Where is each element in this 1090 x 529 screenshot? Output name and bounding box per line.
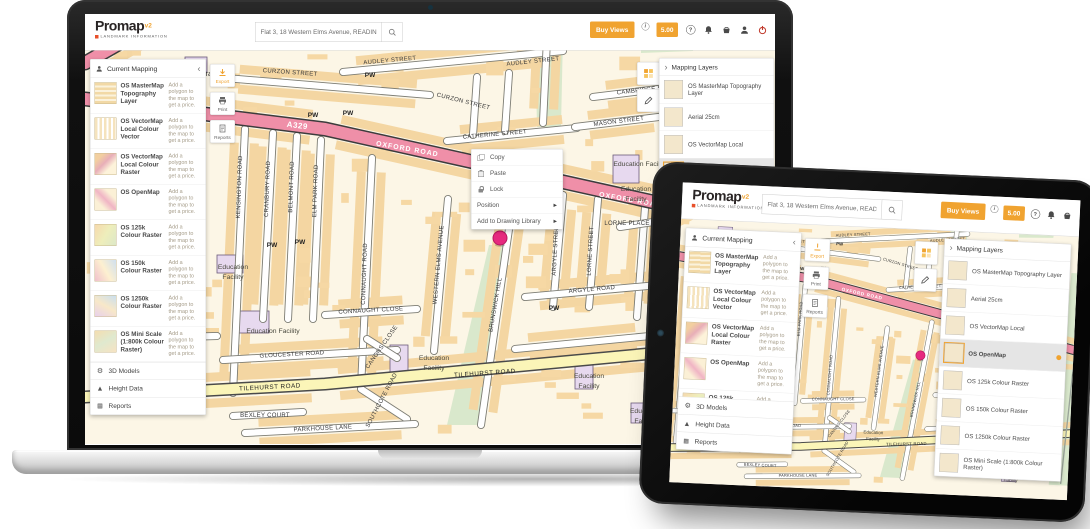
footer-icon xyxy=(683,419,691,427)
tablet-screen: Promapv2 LANDMARK INFORMATION Buy Views … xyxy=(669,182,1080,500)
mapping-product-item[interactable]: OS MasterMap Topography Layer Add a poly… xyxy=(91,78,206,113)
layer-price-note: Add a polygon to the map to get a price. xyxy=(169,153,202,180)
street-label: BEXLEY COURT xyxy=(240,413,290,419)
logo-version: v2 xyxy=(742,192,750,200)
promap-app: Promapv2 LANDMARK INFORMATION Buy Views … xyxy=(669,182,1080,500)
mapping-product-item[interactable]: OS VectorMap Local Colour Raster Add a p… xyxy=(91,149,206,184)
layer-thumbnail xyxy=(945,315,965,335)
map-tools-right xyxy=(637,62,660,112)
layer-option[interactable]: OS MasterMap Topography Layer xyxy=(660,76,774,104)
mapping-product-item[interactable]: OS 125k Colour Raster Add a polygon to t… xyxy=(91,220,206,255)
layer-name: OS 125k Colour Raster xyxy=(967,377,1060,388)
layer-name: OS VectorMap Local Colour Raster xyxy=(711,323,756,348)
menu-label: Position xyxy=(477,202,549,210)
street-label: PW xyxy=(308,112,319,119)
mapping-product-item[interactable]: OS 150k Colour Raster Add a polygon to t… xyxy=(91,255,206,290)
current-mapping-header: Current Mapping xyxy=(91,60,206,79)
help-icon[interactable] xyxy=(1030,208,1041,219)
current-mapping-panel: Current Mapping OS MasterMap Topography … xyxy=(90,59,206,415)
street-label: Education xyxy=(621,186,651,193)
menu-icon xyxy=(477,186,485,194)
layer-thumbnail xyxy=(95,224,117,246)
map-tools-right xyxy=(913,241,938,292)
layer-thumbnail xyxy=(687,286,710,309)
collapse-icon[interactable] xyxy=(198,64,201,73)
logout-icon[interactable] xyxy=(757,24,768,35)
mapping-product-item[interactable]: OS Mini Scale (1:800k Colour Raster) Add… xyxy=(91,326,206,361)
street-label: Facility xyxy=(578,383,600,390)
promap-logo: Promapv2 LANDMARK INFORMATION xyxy=(692,188,765,211)
footer-icon xyxy=(96,385,104,393)
search-icon xyxy=(887,205,896,214)
export-icon xyxy=(218,68,228,78)
tablet-device: Promapv2 LANDMARK INFORMATION Buy Views … xyxy=(638,161,1090,523)
street-label: PW xyxy=(343,110,354,117)
user-icon xyxy=(691,234,699,242)
menu-icon xyxy=(477,154,485,162)
logo-subtext: LANDMARK INFORMATION xyxy=(101,35,168,39)
street-label: PW xyxy=(365,72,376,79)
reports-button[interactable]: Reports xyxy=(802,294,828,318)
footer-label: 3D Models xyxy=(696,402,727,411)
context-menu-item[interactable]: Add to Drawing Library xyxy=(472,214,563,230)
layer-price-note: Add a polygon to the map to get a price. xyxy=(169,188,202,215)
logo-text: Promap xyxy=(95,18,144,34)
layer-price-note: Add a polygon to the map to get a price. xyxy=(169,330,202,357)
search-input[interactable] xyxy=(255,22,382,42)
layer-name: OS OpenMap xyxy=(121,188,165,196)
street-label: TILEHURST ROAD xyxy=(886,441,927,447)
active-layer-dot xyxy=(1056,355,1061,360)
layer-thumbnail xyxy=(664,108,683,127)
street-label: Education Facility xyxy=(246,328,300,335)
layer-thumbnail xyxy=(664,135,683,154)
layer-thumbnail xyxy=(95,295,117,317)
footer-icon xyxy=(96,367,104,375)
layer-price-note: Add a polygon to the map to get a price. xyxy=(169,82,202,109)
buy-views-button[interactable]: Buy Views xyxy=(940,202,985,220)
layer-name: Aerial 25cm xyxy=(688,113,769,120)
layer-price-note: Add a polygon to the map to get a price. xyxy=(757,360,791,388)
street-label: PW xyxy=(267,242,278,249)
search-button[interactable] xyxy=(881,199,903,220)
header-actions: Buy Views 5.00 xyxy=(940,202,1073,224)
street-label: PW xyxy=(549,305,560,312)
expand-icon[interactable] xyxy=(665,63,668,72)
mapping-product-item[interactable]: OS VectorMap Local Colour Raster Add a p… xyxy=(681,317,797,358)
tool-label: Export xyxy=(810,253,824,259)
layer-price-note: Add a polygon to the map to get a price. xyxy=(169,295,202,322)
reports-icon xyxy=(218,124,228,134)
layer-name: OS MasterMap Topography Layer xyxy=(714,252,759,277)
tool-label: Print xyxy=(218,107,228,113)
promap-logo: Promapv2 LANDMARK INFORMATION xyxy=(95,19,168,39)
footer-label: Reports xyxy=(694,437,717,446)
menu-label: Add to Drawing Library xyxy=(477,218,549,226)
layer-thumbnail xyxy=(688,251,711,274)
street-label: Education xyxy=(218,264,248,271)
layer-thumbnail xyxy=(940,425,960,445)
layer-price-note: Add a polygon to the map to get a price. xyxy=(760,290,794,318)
street-label: PW xyxy=(295,239,306,246)
panel-footer-item[interactable]: Reports xyxy=(91,397,206,415)
layer-name: OS VectorMap Local Colour Raster xyxy=(121,153,165,176)
mapping-product-item[interactable]: OS 1250k Colour Raster Add a polygon to … xyxy=(91,291,206,326)
street-label: Education xyxy=(863,429,884,435)
logo-text: Promap xyxy=(692,187,742,205)
bell-icon[interactable] xyxy=(703,24,714,35)
street-label: Facility xyxy=(222,274,244,281)
street-label: Facility xyxy=(625,196,647,203)
layer-thumbnail xyxy=(948,261,968,281)
layer-name: OS OpenMap xyxy=(710,358,754,368)
layer-price-note: Add a polygon to the map to get a price. xyxy=(762,254,796,282)
context-menu-item[interactable]: Paste xyxy=(472,166,563,182)
user-icon[interactable] xyxy=(739,24,750,35)
layer-thumbnail xyxy=(95,259,117,281)
basket-icon[interactable] xyxy=(721,24,732,35)
app-header: Promapv2 LANDMARK INFORMATION Buy Views … xyxy=(85,14,775,51)
mapping-product-item[interactable]: OS OpenMap Add a polygon to the map to g… xyxy=(679,353,795,394)
credit-badge[interactable]: 5.00 xyxy=(1003,205,1025,220)
help-icon[interactable] xyxy=(685,24,696,35)
header-actions: Buy Views 5.00 xyxy=(590,22,768,39)
draw-button[interactable] xyxy=(913,268,937,292)
address-search xyxy=(255,22,403,42)
layer-price-note: Add a polygon to the map to get a price. xyxy=(169,259,202,286)
layers-button[interactable] xyxy=(914,241,938,265)
webcam-icon xyxy=(428,5,433,10)
submenu-arrow-icon xyxy=(554,203,557,209)
panel-footer-item[interactable]: Height Data xyxy=(91,379,206,397)
map-context-menu: Copy Paste Lock xyxy=(471,149,563,230)
print-icon xyxy=(811,270,821,280)
panel-title: Current Mapping xyxy=(702,234,789,245)
search-button[interactable] xyxy=(382,22,403,42)
footer-label: Reports xyxy=(109,402,132,410)
street-label: CONNAUGHT CLOSE xyxy=(812,396,855,401)
draw-button[interactable] xyxy=(637,89,660,112)
layer-thumbnail xyxy=(664,80,683,99)
mapping-product-item[interactable]: OS VectorMap Local Colour Vector Add a p… xyxy=(682,282,798,323)
layer-price-note: Add a polygon to the map to get a price. xyxy=(169,117,202,144)
credit-badge[interactable]: 5.00 xyxy=(656,23,678,38)
menu-label: Copy xyxy=(490,154,557,162)
layer-thumbnail xyxy=(946,288,966,308)
layers-grid-icon xyxy=(643,68,654,79)
search-icon xyxy=(388,28,397,37)
street-label: Facility xyxy=(423,365,445,372)
layer-name: OS 1250k Colour Raster xyxy=(964,432,1057,443)
tool-label: Print xyxy=(811,281,821,287)
basket-icon[interactable] xyxy=(1061,210,1072,221)
layer-name: OS Mini Scale (1:800k Colour Raster) xyxy=(963,456,1057,475)
mapping-product-item[interactable]: OS MasterMap Topography Layer Add a poly… xyxy=(684,247,800,288)
layer-name: OS VectorMap Local Colour Vector xyxy=(121,117,165,140)
footer-label: 3D Models xyxy=(109,367,140,375)
user-icon xyxy=(96,65,104,73)
layer-name: OS 1250k Colour Raster xyxy=(121,295,165,311)
layer-thumbnail xyxy=(943,370,963,390)
reports-icon xyxy=(810,298,820,308)
address-search xyxy=(762,194,903,220)
print-button[interactable]: Print xyxy=(803,266,829,290)
current-mapping-panel: Current Mapping OS MasterMap Topography … xyxy=(676,228,802,455)
footer-icon xyxy=(682,437,690,445)
layer-thumbnail xyxy=(685,322,708,345)
submenu-arrow-icon xyxy=(554,219,557,225)
street-label: Education xyxy=(574,373,604,380)
context-menu-item[interactable]: Lock xyxy=(472,182,563,198)
search-input[interactable] xyxy=(762,194,882,219)
tool-label: Reports xyxy=(806,309,823,315)
layer-name: OS VectorMap Local xyxy=(969,322,1062,333)
camera-icon xyxy=(657,329,664,336)
menu-label: Paste xyxy=(490,170,557,178)
layer-name: OS 150k Colour Raster xyxy=(966,405,1059,416)
layer-thumbnail xyxy=(95,330,117,352)
layer-thumbnail xyxy=(939,453,959,473)
menu-label: Lock xyxy=(490,186,557,194)
layer-name: OS VectorMap Local xyxy=(688,141,769,148)
panel-title: Mapping Layers xyxy=(956,244,1003,254)
layer-name: OS MasterMap Topography Layer xyxy=(972,267,1065,278)
menu-icon xyxy=(477,170,485,178)
pencil-icon xyxy=(919,274,930,285)
info-icon[interactable] xyxy=(990,205,998,213)
context-menu-item[interactable]: Copy xyxy=(472,150,563,166)
layer-thumbnail xyxy=(95,188,117,210)
layer-thumbnail xyxy=(683,357,706,380)
layers-grid-icon xyxy=(921,247,932,258)
street-label: PW xyxy=(836,241,844,246)
logo-mark-icon xyxy=(692,204,696,208)
layer-option[interactable]: Aerial 25cm xyxy=(660,104,774,132)
reports-button[interactable]: Reports xyxy=(210,120,235,143)
info-icon[interactable] xyxy=(641,22,649,30)
layer-thumbnail xyxy=(95,82,117,104)
buy-views-button[interactable]: Buy Views xyxy=(590,22,634,39)
tool-label: Export xyxy=(216,79,230,85)
panel-title: Current Mapping xyxy=(107,65,194,73)
export-icon xyxy=(812,242,822,252)
layer-thumbnail xyxy=(95,117,117,139)
layers-button[interactable] xyxy=(637,62,660,85)
footer-icon xyxy=(96,402,104,410)
layer-name: OS MasterMap Topography Layer xyxy=(121,82,165,105)
bell-icon[interactable] xyxy=(1046,209,1057,220)
layer-name: Aerial 25cm xyxy=(971,295,1064,306)
layer-name: OS VectorMap Local Colour Vector xyxy=(713,287,758,312)
tool-label: Reports xyxy=(214,135,231,141)
layer-name: OS 125k Colour Raster xyxy=(121,224,165,240)
layer-name: OS OpenMap xyxy=(968,350,1051,361)
print-button[interactable]: Print xyxy=(210,92,235,115)
layer-name: OS Mini Scale (1:800k Colour Raster) xyxy=(121,330,165,353)
map-tools-left: Export Print Reports xyxy=(802,238,831,318)
layer-thumbnail xyxy=(95,153,117,175)
mapping-product-item[interactable]: OS OpenMap Add a polygon to the map to g… xyxy=(91,184,206,219)
street-label: Education xyxy=(419,355,449,362)
layer-name: OS 150k Colour Raster xyxy=(121,259,165,275)
print-icon xyxy=(218,96,228,106)
street-label: LORNE PLACE xyxy=(604,221,649,227)
expand-icon[interactable] xyxy=(949,243,952,252)
mapping-layers-panel: Mapping Layers OS MasterMap Topography L… xyxy=(934,238,1072,482)
map-tools-left: Export Print Reports xyxy=(210,64,235,143)
panel-footer-item[interactable]: 3D Models xyxy=(91,362,206,380)
layer-price-note: Add a polygon to the map to get a price. xyxy=(759,325,793,353)
layer-name: OS MasterMap Topography Layer xyxy=(688,82,769,96)
logo-mark-icon xyxy=(95,35,99,39)
layer-option[interactable]: OS VectorMap Local xyxy=(660,131,774,159)
laptop-notch xyxy=(378,450,482,459)
export-button[interactable]: Export xyxy=(804,238,830,262)
panel-title: Mapping Layers xyxy=(672,63,718,71)
street-label: Facility xyxy=(866,436,881,442)
mapping-layers-header: Mapping Layers xyxy=(660,59,774,77)
footer-label: Height Data xyxy=(695,420,730,429)
collapse-icon[interactable] xyxy=(793,237,796,246)
export-button[interactable]: Export xyxy=(210,64,235,87)
street-label: PARKHOUSE LANE xyxy=(779,473,818,478)
pencil-icon xyxy=(643,95,654,106)
logo-version: v2 xyxy=(145,21,152,29)
layer-price-note: Add a polygon to the map to get a price. xyxy=(169,224,202,251)
layer-thumbnail xyxy=(941,398,961,418)
layer-thumbnail xyxy=(944,343,964,363)
mapping-product-item[interactable]: OS VectorMap Local Colour Vector Add a p… xyxy=(91,113,206,148)
context-menu-item[interactable]: Position xyxy=(472,198,563,214)
layer-option[interactable]: OS Mini Scale (1:800k Colour Raster) xyxy=(934,449,1061,482)
footer-label: Height Data xyxy=(109,385,143,393)
footer-icon xyxy=(684,402,692,410)
